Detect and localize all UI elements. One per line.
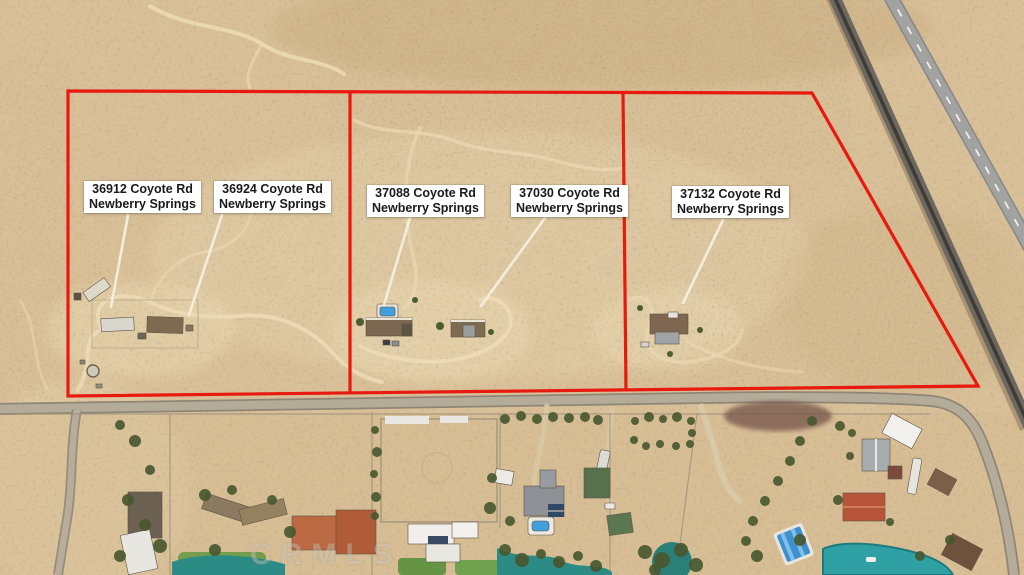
white-shed — [494, 469, 514, 486]
boat — [866, 557, 876, 562]
city-line: Newberry Springs — [89, 197, 196, 212]
address-label-37132: 37132 Coyote Rd Newberry Springs — [672, 186, 789, 218]
junk — [80, 360, 85, 364]
city-line: Newberry Springs — [516, 201, 623, 216]
junk — [96, 384, 102, 388]
gray-addition — [655, 332, 679, 344]
water-tank — [87, 365, 99, 377]
address-label-37030: 37030 Coyote Rd Newberry Springs — [511, 185, 628, 217]
shed — [74, 293, 81, 300]
gray-roof-section — [463, 325, 475, 337]
address-line: 36912 Coyote Rd — [89, 182, 196, 197]
car — [641, 342, 649, 347]
mls-watermark: CRMLS — [250, 538, 402, 572]
address-label-36924: 36924 Coyote Rd Newberry Springs — [214, 181, 331, 213]
city-line: Newberry Springs — [372, 201, 479, 216]
city-line: Newberry Springs — [219, 197, 326, 212]
address-label-36912: 36912 Coyote Rd Newberry Springs — [84, 181, 201, 213]
shed — [186, 325, 193, 331]
car — [383, 340, 390, 345]
car — [392, 341, 399, 346]
white-car — [605, 503, 615, 509]
mobile-home — [101, 317, 135, 332]
city-line: Newberry Springs — [677, 202, 784, 217]
metal-barn — [862, 439, 890, 471]
garage — [402, 324, 412, 336]
brown-house — [147, 316, 184, 333]
pool — [380, 307, 395, 316]
aerial-listing-photo: 36912 Coyote Rd Newberry Springs 36924 C… — [0, 0, 1024, 575]
address-line: 37030 Coyote Rd — [516, 186, 623, 201]
address-line: 37088 Coyote Rd — [372, 186, 479, 201]
red-shed — [888, 466, 902, 479]
gravel-patch — [724, 401, 832, 431]
address-line: 37132 Coyote Rd — [677, 187, 784, 202]
aerial-scene — [0, 0, 1024, 575]
white-patch — [668, 312, 678, 318]
address-line: 36924 Coyote Rd — [219, 182, 326, 197]
backyard-pool — [532, 521, 549, 531]
red-roof-house — [843, 493, 885, 521]
address-label-37088: 37088 Coyote Rd Newberry Springs — [367, 185, 484, 217]
shed — [138, 333, 146, 339]
